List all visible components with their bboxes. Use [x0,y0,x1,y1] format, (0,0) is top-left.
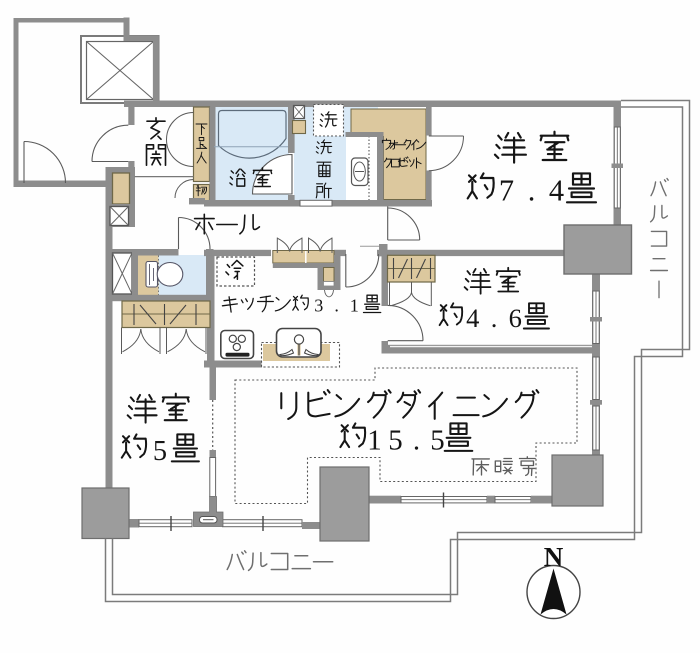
svg-text:5: 5 [430,424,444,456]
svg-text:5: 5 [388,424,402,456]
svg-text:.: . [334,296,339,316]
svg-text:N: N [544,542,564,572]
svg-text:1: 1 [350,296,359,316]
svg-text:3: 3 [314,296,323,316]
svg-text:.: . [413,424,420,456]
svg-text:7: 7 [499,174,514,208]
svg-text:5: 5 [153,436,167,467]
svg-text:.: . [491,303,498,333]
svg-text:1: 1 [367,424,381,456]
svg-text:4: 4 [549,174,564,208]
svg-text:.: . [528,174,536,208]
svg-text:4: 4 [466,303,479,333]
svg-text:6: 6 [509,303,522,333]
